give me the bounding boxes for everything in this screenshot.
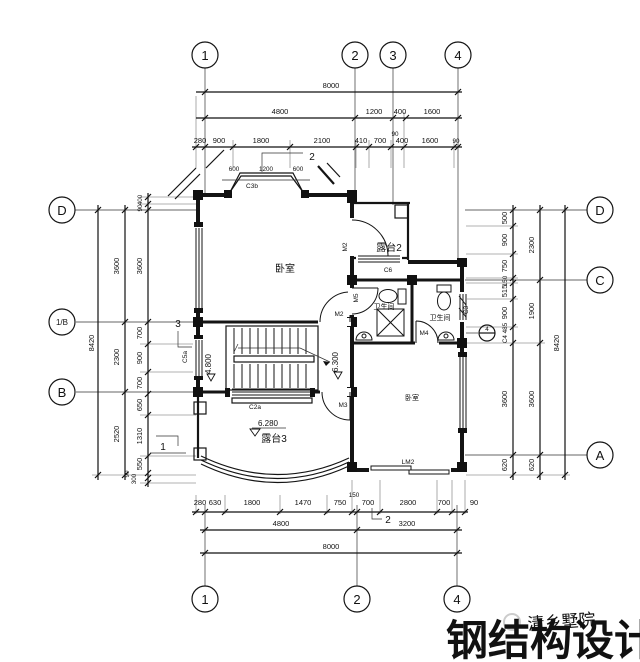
- dim-bay: 600: [229, 166, 240, 173]
- dim: 1800: [244, 498, 261, 507]
- dim: 700: [135, 377, 144, 390]
- axis-label: 4: [453, 592, 460, 607]
- dim: 620: [500, 459, 509, 472]
- dim: 1470: [295, 498, 312, 507]
- room-label-bedroom-bottom: 卧室: [405, 393, 419, 402]
- dim: 900: [500, 307, 509, 320]
- label-lm2: LM2: [402, 459, 415, 466]
- dim: 2520: [112, 426, 121, 443]
- toilet-tank-right: [437, 285, 451, 292]
- axis-label: 1: [201, 592, 208, 607]
- dim: 1310: [135, 428, 144, 445]
- dim: 1200: [366, 107, 383, 116]
- dim: 4800: [272, 107, 289, 116]
- dim: 700: [438, 498, 451, 507]
- dim: 700: [362, 498, 375, 507]
- dim: 700: [374, 136, 387, 145]
- dim-bay: 600: [293, 166, 304, 173]
- label-m2-terrace: M2: [342, 242, 349, 251]
- dim: 2800: [400, 498, 417, 507]
- dim-top-total: 8000: [323, 81, 340, 90]
- section-marker-3-left: 3: [175, 319, 181, 330]
- room-label-terrace3: 露台3: [261, 432, 287, 445]
- dim: 900: [500, 234, 509, 247]
- level-stair-right: 6.300: [331, 351, 340, 372]
- dim: 300: [131, 473, 138, 484]
- dim: 1600: [422, 136, 439, 145]
- paper-background: [0, 0, 640, 662]
- axis-label: 1: [201, 48, 208, 63]
- dim: 630: [209, 498, 222, 507]
- dim: 2300: [112, 349, 121, 366]
- room-label-bedroom-top: 卧室: [275, 262, 295, 275]
- dim: 280: [194, 136, 207, 145]
- label-c2a: C2a: [249, 404, 261, 411]
- dim: 2300: [527, 237, 536, 254]
- axis-label: 2: [351, 48, 358, 63]
- dim: 3200: [399, 519, 416, 528]
- dim: 1800: [253, 136, 270, 145]
- axis-label: 1/B: [56, 318, 68, 327]
- axis-label: D: [57, 203, 66, 218]
- axis-label: 3: [389, 48, 396, 63]
- dim: 90: [452, 138, 460, 145]
- dim: 700: [135, 327, 144, 340]
- level-stair-left: 4.800: [204, 353, 213, 374]
- toilet-bowl-left: [379, 290, 397, 303]
- axis-label: D: [595, 203, 604, 218]
- toilet-bowl-right: [438, 292, 451, 310]
- dim: 4800: [273, 519, 290, 528]
- label-c5a: C5a: [182, 351, 189, 363]
- dim: 400: [137, 194, 144, 205]
- dim: 900: [135, 352, 144, 365]
- dim-c4: C4 485: [502, 322, 509, 343]
- dim: 90: [124, 470, 131, 478]
- dim: 750: [334, 498, 347, 507]
- dim: 410: [355, 136, 368, 145]
- dim: 550: [135, 458, 144, 471]
- floor-plan-canvas: 1 2 3 4 1 2 4 D 1/B B D C A 8000 4800 12…: [0, 0, 640, 662]
- label-m4: M4: [419, 330, 428, 337]
- axis-label: 4: [454, 48, 461, 63]
- dim: 750: [500, 260, 509, 273]
- dim: 3600: [112, 258, 121, 275]
- dim-right-total: 8420: [552, 335, 561, 352]
- dim-left-total: 8420: [87, 335, 96, 352]
- dim: 900: [213, 136, 226, 145]
- label-m3: M3: [338, 402, 347, 409]
- room-label-terrace2: 露台2: [376, 241, 402, 254]
- watermark: 清乡墅院 钢结构设计: [446, 610, 640, 662]
- room-label-bath-right: 卫生间: [430, 313, 451, 322]
- watermark-title: 钢结构设计: [446, 617, 640, 662]
- dim: 90: [470, 498, 478, 507]
- dim-bottom-total: 8000: [323, 542, 340, 551]
- dim: 400: [396, 136, 409, 145]
- dim: 2100: [314, 136, 331, 145]
- dim: 650: [135, 399, 144, 412]
- label-c3: C3: [463, 305, 470, 314]
- axis-label: C: [595, 273, 604, 288]
- label-c6: C6: [384, 267, 393, 274]
- dim: 3600: [527, 391, 536, 408]
- dim: 3600: [135, 258, 144, 275]
- dim: 90: [137, 204, 144, 212]
- axis-label: B: [58, 385, 67, 400]
- dim: 515: [500, 285, 509, 298]
- level-terrace3: 6.280: [258, 419, 279, 428]
- dim: 500: [500, 212, 509, 225]
- dim: 620: [527, 459, 536, 472]
- dim: 1600: [424, 107, 441, 116]
- section-marker-2-bottom: 2: [385, 515, 391, 526]
- dim: 150: [349, 492, 360, 499]
- section-marker-2-top: 2: [309, 152, 315, 163]
- room-label-bath-left: 卫生间: [374, 302, 395, 311]
- dim-bay: 1200: [259, 166, 274, 173]
- toilet-tank-left: [398, 289, 406, 304]
- label-m2-bedroom: M2: [334, 311, 343, 318]
- label-c3b: C3b: [246, 183, 258, 190]
- dim: 150: [502, 275, 509, 286]
- axis-label: A: [596, 448, 605, 463]
- dim: 400: [394, 107, 407, 116]
- axis-label: 2: [353, 592, 360, 607]
- dim: 280: [194, 498, 207, 507]
- detail-marker-4: 4: [485, 326, 489, 333]
- section-marker-1-left: 1: [160, 442, 166, 453]
- dim: 1900: [527, 303, 536, 320]
- label-m5: M5: [353, 293, 360, 302]
- dim: 3600: [500, 391, 509, 408]
